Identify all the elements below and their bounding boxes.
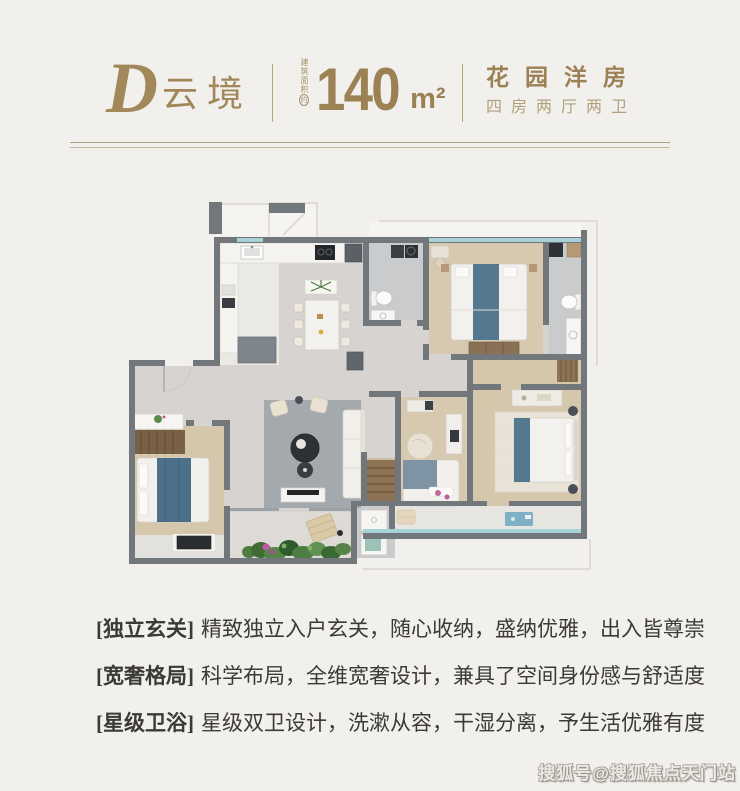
floor-plan [129, 190, 611, 600]
area-note-circled: 约 [299, 94, 309, 106]
area-note-vertical: 建筑面积约 [298, 58, 310, 108]
area-unit: m² [410, 85, 445, 114]
product-type: 花园洋房 [486, 66, 642, 89]
unit-letter: D [106, 52, 158, 124]
unit-name: 云境 [162, 76, 252, 112]
feature-desc: 星级双卫设计，洗漱从容，干湿分离，予生活优雅有度 [201, 711, 705, 735]
header-divider-left [272, 64, 273, 122]
poster: D 云境 建筑面积约 140 m² 花园洋房 四房两厅两卫 [0, 0, 740, 791]
area-group: 建筑面积约 140 m² [298, 58, 446, 114]
header-divider-right [462, 64, 463, 122]
area-value: 140 [316, 65, 399, 114]
master-bedroom [495, 406, 579, 494]
closet-niche [367, 460, 395, 501]
header-rule [70, 142, 670, 148]
feature-tag: [宽奢格局] [96, 664, 194, 688]
master-balcony-floor [395, 506, 581, 533]
feature-row-layout: [宽奢格局]科学布局，全维宽奢设计，兼具了空间身份感与舒适度 [96, 663, 676, 690]
feature-desc: 精致独立入户玄关，随心收纳，盛纳优雅，出入皆尊崇 [201, 617, 705, 641]
area-note-text: 建筑面积 [300, 58, 309, 94]
feature-row-entry: [独立玄关]精致独立入户玄关，随心收纳，盛纳优雅，出入皆尊崇 [96, 616, 676, 643]
feature-tag: [星级卫浴] [96, 711, 194, 735]
feature-list: [独立玄关]精致独立入户玄关，随心收纳，盛纳优雅，出入皆尊崇 [宽奢格局]科学布… [96, 616, 676, 757]
feature-desc: 科学布局，全维宽奢设计，兼具了空间身份感与舒适度 [201, 664, 705, 688]
product-type-group: 花园洋房 四房两厅两卫 [486, 66, 642, 116]
entry-hall [133, 414, 183, 429]
watermark: 搜狐号@搜狐焦点天门站 [538, 759, 736, 784]
feature-row-bathroom: [星级卫浴]星级双卫设计，洗漱从容，干湿分离，予生活优雅有度 [96, 710, 676, 737]
feature-tag: [独立玄关] [96, 617, 194, 641]
layout-spec: 四房两厅两卫 [486, 100, 642, 116]
